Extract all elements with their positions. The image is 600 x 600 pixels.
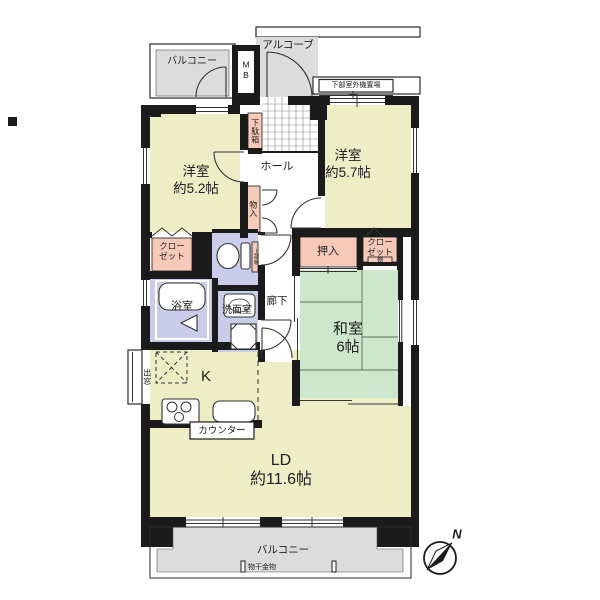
- wall: [318, 96, 325, 196]
- wall: [141, 105, 150, 148]
- wall: [141, 517, 173, 547]
- label-room57-name: 洋室: [335, 148, 362, 164]
- bay-window: [128, 350, 142, 404]
- sliding-door-icon: [295, 275, 298, 360]
- wall: [141, 271, 212, 279]
- wall: [258, 265, 265, 320]
- wall: [260, 517, 282, 527]
- label-washitsu: 和室 6帖: [333, 320, 363, 355]
- wall-cavity: [403, 237, 411, 406]
- washing-machine-icon: [231, 324, 256, 349]
- label-mb: MB: [241, 60, 251, 81]
- wall: [212, 285, 258, 291]
- label-upper-shelf: 上部棚: [252, 249, 258, 266]
- label-oshiire: 押入: [317, 246, 339, 259]
- toilet-icon: [241, 243, 250, 269]
- label-laundry-hardware: 物干金物: [248, 564, 276, 572]
- window: [144, 280, 147, 306]
- floor-plan: アルコーブ バルコニー MB 下部室外機置場 下駄箱 ホール 洋室 約5.2帖 …: [0, 0, 600, 600]
- wall: [240, 114, 248, 150]
- kitchen-sink-icon: [213, 401, 255, 422]
- label-room52-name: 洋室: [183, 164, 210, 180]
- laundry-bracket-icon: [241, 561, 245, 572]
- window: [196, 108, 228, 112]
- label-north: N: [452, 526, 461, 541]
- label-shoe-box: 下駄箱: [250, 118, 259, 144]
- label-washroom: 洗面室: [222, 305, 252, 317]
- window: [414, 300, 417, 345]
- window: [144, 148, 147, 184]
- label-bath: 浴室: [171, 301, 193, 314]
- wall: [212, 229, 258, 233]
- label-hall: ホール: [261, 161, 294, 174]
- label-room52-size: 約5.2帖: [173, 181, 219, 197]
- wall: [398, 237, 403, 300]
- wall: [292, 270, 300, 276]
- wall: [377, 517, 419, 547]
- label-living: LD 約11.6帖: [250, 452, 312, 490]
- label-kitchen: K: [201, 368, 211, 386]
- wall: [141, 232, 152, 238]
- wall: [357, 237, 363, 270]
- laundry-bracket-icon: [332, 561, 336, 572]
- wall: [398, 342, 403, 406]
- wall: [248, 148, 262, 154]
- page-mark: [8, 117, 17, 126]
- label-balcony-top: バルコニー: [167, 56, 217, 68]
- wall: [292, 237, 300, 270]
- roof-line: [256, 27, 420, 37]
- label-storage: 物入: [248, 201, 257, 218]
- floor-plan-drawing: [0, 0, 600, 600]
- window: [186, 517, 260, 527]
- stove-icon: [162, 399, 199, 424]
- label-bay-window: 出窓: [142, 369, 151, 386]
- label-room57-size: 約5.7帖: [325, 165, 371, 181]
- wall: [411, 96, 419, 128]
- label-closet-right: クロー ゼット: [367, 237, 393, 257]
- label-counter: カウンター: [198, 425, 246, 436]
- window: [414, 128, 417, 173]
- wall: [212, 278, 218, 352]
- entrance-tile: [262, 97, 318, 152]
- label-shelf: 棚: [377, 257, 383, 264]
- wall: [228, 105, 240, 114]
- label-closet-left: クロー ゼット: [159, 241, 185, 261]
- toilet-icon: [217, 244, 239, 269]
- label-balcony-bottom: バルコニー: [257, 544, 309, 556]
- window: [282, 517, 343, 527]
- label-outdoor-unit: 下部室外機置場: [332, 82, 381, 90]
- window: [400, 300, 402, 342]
- label-alcove: アルコーブ: [262, 39, 314, 51]
- wall: [343, 517, 378, 527]
- label-corridor: 廊下: [267, 295, 288, 307]
- compass-icon: [424, 542, 456, 574]
- wall: [292, 360, 300, 406]
- wall: [411, 345, 419, 517]
- wall: [292, 228, 419, 237]
